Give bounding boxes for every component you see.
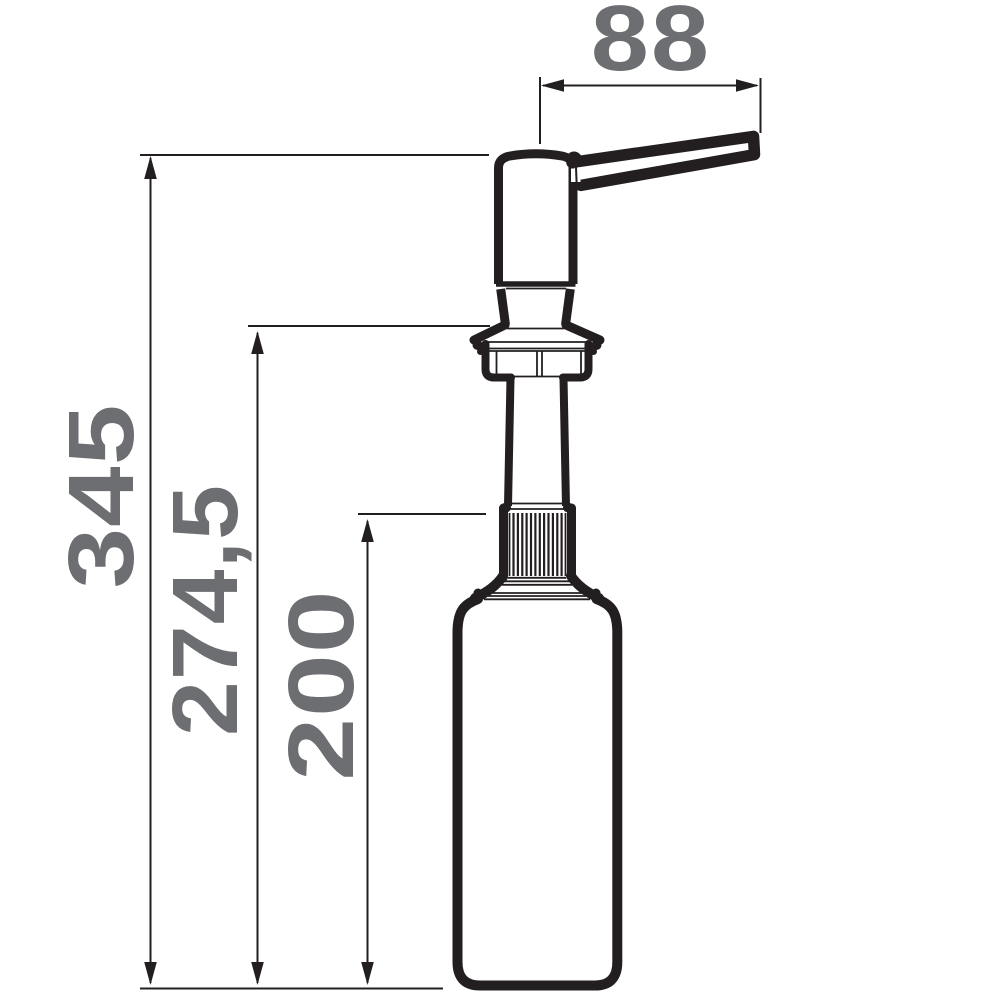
svg-text:345: 345: [49, 403, 153, 588]
svg-text:274,5: 274,5: [154, 484, 258, 736]
svg-text:88: 88: [591, 0, 711, 90]
svg-text:200: 200: [269, 589, 373, 780]
